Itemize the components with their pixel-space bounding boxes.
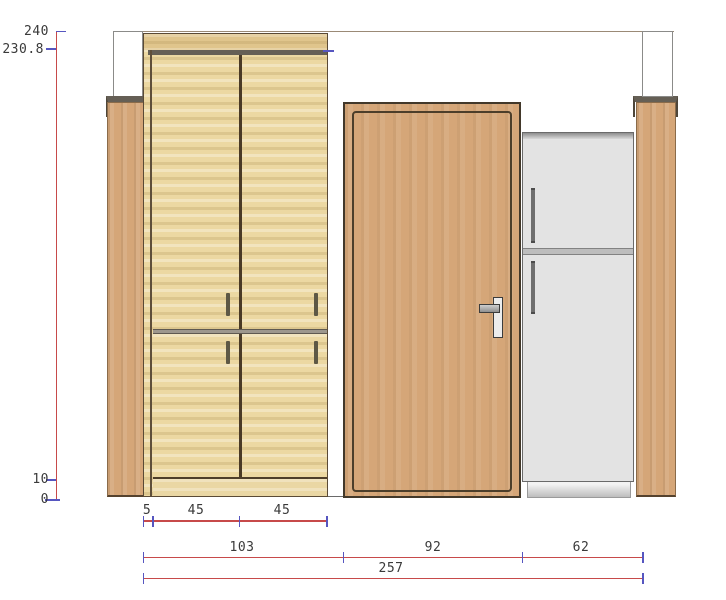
- room-door[interactable]: [343, 102, 521, 498]
- wardrobe-cabinet[interactable]: [143, 33, 328, 497]
- segment-dim-tick-4: [642, 552, 644, 563]
- wardrobe-handle-lower-right[interactable]: [314, 341, 319, 364]
- total-width-label: 257: [366, 562, 416, 576]
- wardrobe-right-door-width-label: 45: [257, 504, 307, 518]
- snap-marker: [323, 50, 334, 52]
- wardrobe-top-panel: [144, 34, 327, 50]
- door-panel-border: [352, 111, 512, 492]
- floor-line-segment: [328, 496, 343, 498]
- total-dim-tick-2: [642, 573, 644, 584]
- fridge-door-handle[interactable]: [531, 261, 535, 314]
- total-dim-tick-1: [143, 573, 145, 584]
- width-dimension-line-wardrobe: [143, 520, 327, 522]
- left-wall-column: [113, 31, 144, 97]
- wardrobe-handle-lower-left[interactable]: [226, 341, 231, 364]
- height-tick-240: [56, 31, 66, 33]
- width-dimension-line-segments: [143, 557, 643, 559]
- fridge-divider: [523, 248, 633, 255]
- wardrobe-handle-upper-left[interactable]: [226, 293, 231, 316]
- width-dimension-line-total: [143, 578, 643, 580]
- right-wall-column: [642, 31, 673, 97]
- wardrobe-mid-rail: [153, 329, 327, 335]
- right-column-cap: [633, 96, 678, 117]
- wardrobe-left-door-width-label: 45: [171, 504, 221, 518]
- height-dimension-line: [56, 31, 58, 500]
- fridge-segment-label: 62: [556, 541, 606, 555]
- wardrobe-doors[interactable]: [153, 55, 327, 478]
- wardrobe-side-width-label: 5: [122, 504, 172, 518]
- left-wall-pillar[interactable]: [107, 102, 147, 497]
- elevation-drawing-canvas: 240 230.8 10 0: [0, 0, 726, 600]
- height-label-240: 240: [7, 25, 49, 39]
- door-lever-handle[interactable]: [479, 304, 500, 313]
- right-wall-pillar[interactable]: [636, 102, 676, 497]
- height-label-10: 10: [7, 473, 49, 487]
- wardrobe-handle-upper-right[interactable]: [314, 293, 319, 316]
- height-tick-230-8: [46, 48, 57, 50]
- wardrobe-segment-label: 103: [217, 541, 267, 555]
- fridge-base: [527, 482, 631, 498]
- wardrobe-dim-tick-3: [239, 516, 241, 527]
- segment-dim-tick-1: [143, 552, 145, 563]
- segment-dim-tick-3: [522, 552, 524, 563]
- height-label-230-8: 230.8: [2, 43, 44, 57]
- fridge-top-trim: [523, 133, 633, 139]
- wardrobe-dim-tick-4: [326, 516, 328, 527]
- fridge[interactable]: [522, 132, 634, 482]
- freezer-door-handle[interactable]: [531, 188, 535, 243]
- wardrobe-door-gap: [239, 55, 242, 478]
- segment-dim-tick-2: [343, 552, 345, 563]
- wardrobe-side-joint-line: [150, 50, 152, 496]
- door-segment-label: 92: [408, 541, 458, 555]
- ceiling-line: [113, 31, 674, 33]
- wardrobe-plinth: [153, 477, 327, 496]
- height-label-0: 0: [7, 493, 49, 507]
